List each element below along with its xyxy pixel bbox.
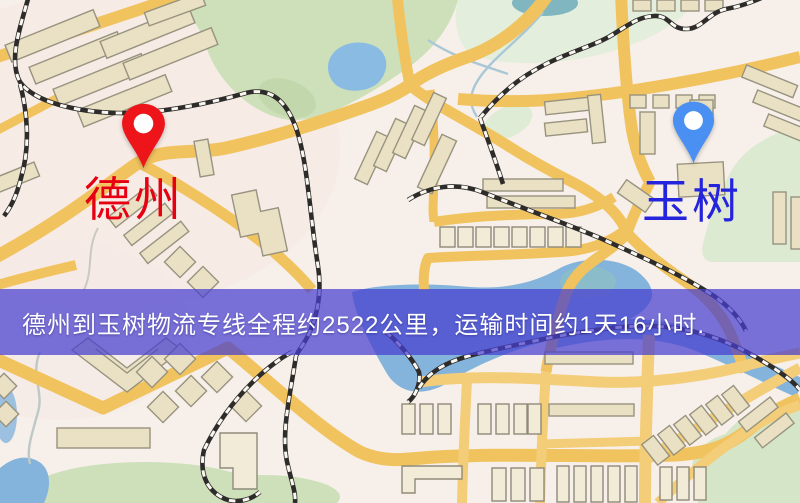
destination-label: 玉树 bbox=[642, 178, 742, 225]
origin-pin-icon[interactable] bbox=[119, 102, 168, 170]
origin-label: 德州 bbox=[84, 176, 184, 223]
destination-pin-hole bbox=[684, 111, 703, 130]
origin-pin-shape bbox=[122, 104, 165, 168]
destination-pin-shape bbox=[673, 102, 714, 164]
route-map: 德州 玉树 德州到玉树物流专线全程约2522公里，运输时间约1天16小时. bbox=[0, 0, 800, 503]
route-info-text: 德州到玉树物流专线全程约2522公里，运输时间约1天16小时. bbox=[0, 305, 705, 340]
route-info-banner: 德州到玉树物流专线全程约2522公里，运输时间约1天16小时. bbox=[0, 289, 800, 355]
map-canvas bbox=[0, 0, 800, 503]
destination-pin-icon[interactable] bbox=[670, 100, 717, 165]
origin-pin-hole bbox=[134, 114, 154, 134]
